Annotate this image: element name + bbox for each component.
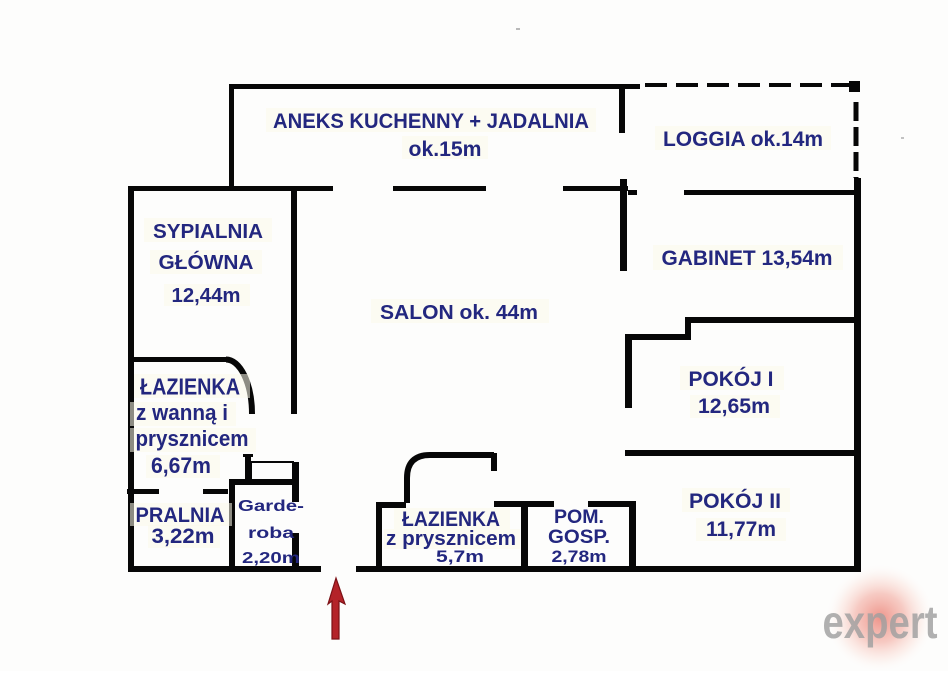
svg-text:3,22m: 3,22m xyxy=(152,525,215,548)
svg-text:5,7m: 5,7m xyxy=(436,547,484,566)
svg-text:11,77m: 11,77m xyxy=(706,518,776,541)
svg-text:12,44m: 12,44m xyxy=(172,285,241,307)
svg-text:PRALNIA: PRALNIA xyxy=(136,504,225,527)
svg-text:LOGGIA ok.14m: LOGGIA ok.14m xyxy=(663,128,823,151)
svg-text:POM.: POM. xyxy=(554,507,604,528)
svg-text:expert: expert xyxy=(823,596,938,648)
svg-text:roba: roba xyxy=(248,525,294,542)
svg-text:GŁÓWNA: GŁÓWNA xyxy=(159,250,254,274)
svg-text:ok.15m: ok.15m xyxy=(409,138,482,161)
svg-text:z wanną i: z wanną i xyxy=(136,400,228,425)
svg-text:POKÓJ II: POKÓJ II xyxy=(689,489,781,513)
svg-text:ANEKS KUCHENNY + JADALNIA: ANEKS KUCHENNY + JADALNIA xyxy=(273,110,589,133)
svg-text:2,78m: 2,78m xyxy=(552,547,607,566)
svg-text:POKÓJ I: POKÓJ I xyxy=(689,367,774,391)
svg-text:6,67m: 6,67m xyxy=(151,453,211,478)
svg-text:prysznicem: prysznicem xyxy=(136,426,249,451)
svg-text:ŁAZIENKA: ŁAZIENKA xyxy=(140,374,240,400)
svg-text:SYPIALNIA: SYPIALNIA xyxy=(153,221,263,243)
svg-text:GOSP.: GOSP. xyxy=(548,527,610,548)
svg-text:12,65m: 12,65m xyxy=(698,395,770,418)
svg-text:GABINET 13,54m: GABINET 13,54m xyxy=(662,247,833,270)
svg-text:SALON ok. 44m: SALON ok. 44m xyxy=(380,302,538,324)
svg-text:2,20m: 2,20m xyxy=(242,550,300,567)
svg-text:Garde-: Garde- xyxy=(238,498,304,515)
